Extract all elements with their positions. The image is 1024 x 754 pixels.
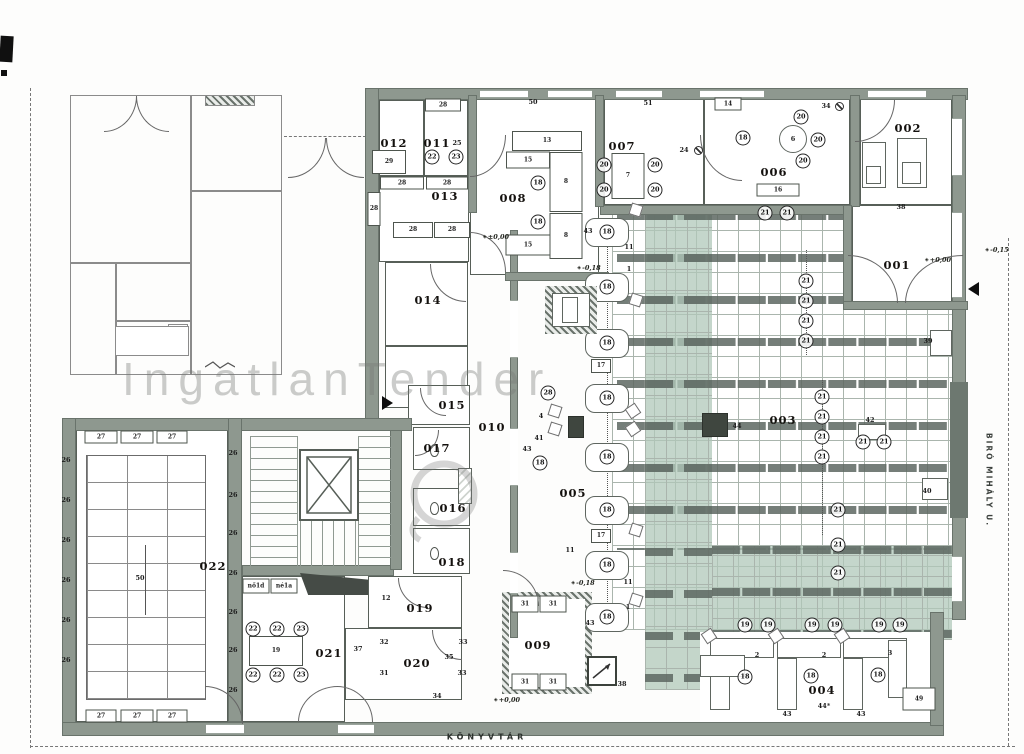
- vent-symbol-icon: [694, 146, 703, 155]
- circled-number: 21: [815, 430, 830, 445]
- plan-annotation: 4: [539, 413, 544, 420]
- elevation-marker: -0,18: [577, 264, 600, 272]
- circled-number: 23: [294, 668, 309, 683]
- plan-annotation: 15: [506, 235, 551, 256]
- circled-number: 23: [449, 150, 464, 165]
- circled-number: 18: [600, 336, 615, 351]
- room-number: 015: [438, 398, 465, 412]
- circled-number: 21: [799, 294, 814, 309]
- catalog-cabinet: [702, 413, 728, 437]
- plan-annotation: 28: [393, 222, 433, 238]
- plan-annotation: 44*: [818, 703, 830, 710]
- watermark: IngatlanTender: [122, 352, 552, 406]
- circled-number: 21: [815, 390, 830, 405]
- door-arc: [288, 138, 326, 178]
- room-number: 005: [559, 486, 586, 500]
- circled-number: 18: [600, 225, 615, 240]
- opening: [510, 428, 518, 486]
- plan-annotation: 25: [452, 140, 461, 147]
- plan-annotation: 16: [757, 184, 800, 197]
- plan-annotation: 24: [679, 147, 688, 154]
- room-number: 011: [423, 136, 450, 150]
- plan-annotation: 28: [368, 192, 381, 226]
- circled-number: 18: [804, 669, 819, 684]
- circled-number: 20: [597, 158, 612, 173]
- green-shelf-strip: [645, 212, 712, 690]
- plan-annotation: 43: [585, 620, 594, 627]
- plan-annotation: 51: [643, 100, 652, 107]
- catalog-cabinet: [568, 416, 584, 438]
- window: [952, 556, 962, 602]
- book-cart: [930, 330, 952, 356]
- desk-004: [843, 658, 863, 710]
- circled-number: 18: [600, 280, 615, 295]
- library-caption: KÖNYVTÁR: [447, 733, 528, 742]
- elevation-marker: +0,00: [494, 696, 520, 704]
- plan-annotation: 28: [380, 177, 424, 190]
- neighbor-wall: [70, 262, 191, 264]
- plan-annotation: 33: [458, 639, 467, 646]
- opening: [510, 300, 518, 358]
- plan-annotation: 49: [903, 688, 936, 711]
- bookshelf-rows: [645, 212, 712, 690]
- door-gap: [206, 724, 244, 734]
- table-022-centerline: [145, 545, 146, 615]
- circled-number: 18: [533, 456, 548, 471]
- plan-annotation: 26: [228, 492, 237, 499]
- wall-pier: [950, 382, 968, 518]
- desk-004: [777, 638, 841, 658]
- circled-number: 18: [600, 503, 615, 518]
- street-name-label: BIRÓ MIHÁLY U.: [985, 433, 994, 527]
- plan-annotation: 43: [856, 711, 865, 718]
- plan-annotation: 31: [512, 674, 539, 691]
- circled-number: 21: [815, 450, 830, 465]
- plan-annotation: 31: [540, 596, 567, 613]
- plan-annotation: 2: [822, 652, 827, 659]
- room-number: 001: [883, 258, 910, 272]
- elevator-shaft: [299, 449, 359, 521]
- circled-number: 21: [831, 503, 846, 518]
- plan-annotation: 3: [888, 650, 893, 657]
- circled-number: 21: [799, 334, 814, 349]
- opening-line: [284, 136, 366, 137]
- circled-number: 22: [270, 668, 285, 683]
- watermark-logo-icon: [396, 452, 492, 544]
- plan-annotation: 34: [432, 693, 441, 700]
- plan-annotation: 13: [512, 131, 582, 151]
- circled-number: 18: [600, 558, 615, 573]
- circled-number: 22: [425, 150, 440, 165]
- stair-arrow-box: [587, 656, 617, 686]
- room-number: 006: [760, 165, 787, 179]
- plan-annotation: nő1d: [243, 579, 270, 594]
- circled-number: 18: [531, 215, 546, 230]
- plan-annotation: 19: [249, 636, 303, 666]
- plan-annotation: né1a: [271, 579, 298, 594]
- plan-annotation: 26: [228, 450, 237, 457]
- property-line-left: [30, 88, 31, 748]
- circled-number: 18: [600, 610, 615, 625]
- plan-annotation: 8: [550, 152, 583, 212]
- plan-annotation: 28: [426, 177, 468, 190]
- plan-annotation: 2: [755, 652, 760, 659]
- room-number: 018: [438, 555, 465, 569]
- desk-002: [902, 162, 921, 184]
- circled-number: 21: [831, 538, 846, 553]
- plan-annotation: 6: [791, 136, 796, 143]
- plan-annotation: 28: [434, 222, 470, 238]
- room-number: 007: [608, 139, 635, 153]
- room-number: 020: [403, 656, 430, 670]
- plan-annotation: 31: [379, 670, 388, 677]
- plan-annotation: 39: [923, 338, 932, 345]
- circled-number: 18: [600, 450, 615, 465]
- circled-number: 21: [758, 206, 773, 221]
- stair-flight-left: [250, 436, 298, 568]
- circled-number: 21: [877, 435, 892, 450]
- stair-flight-right: [358, 436, 392, 568]
- circled-number: 21: [799, 274, 814, 289]
- door-gap: [338, 724, 374, 734]
- plan-annotation: 11: [624, 244, 633, 251]
- chair: [547, 421, 562, 436]
- plan-annotation: 31: [540, 674, 567, 691]
- circled-number: 22: [246, 668, 261, 683]
- plan-annotation: 1: [627, 266, 632, 273]
- table-022: [86, 455, 206, 700]
- plan-annotation: 31: [512, 596, 539, 613]
- circled-number: 20: [648, 158, 663, 173]
- plan-annotation: 37: [353, 646, 362, 653]
- plan-annotation: 29: [372, 150, 406, 174]
- plan-annotation: 26: [61, 457, 70, 464]
- plan-annotation: 42: [865, 417, 874, 424]
- vent-symbol-icon: [835, 102, 844, 111]
- neighbor-wall: [115, 262, 117, 375]
- circled-number: 19: [738, 618, 753, 633]
- room-number: 022: [199, 559, 226, 573]
- circled-number: 20: [796, 154, 811, 169]
- room-number: 013: [431, 189, 458, 203]
- circled-number: 22: [246, 622, 261, 637]
- plan-annotation: 26: [228, 647, 237, 654]
- circled-number: 21: [799, 314, 814, 329]
- neighbor-wall: [115, 320, 191, 322]
- plan-annotation: 27: [86, 710, 117, 723]
- room-number: 004: [808, 683, 835, 697]
- plan-annotation: 35: [444, 654, 453, 661]
- circled-number: 18: [531, 176, 546, 191]
- circled-number: 18: [871, 668, 886, 683]
- plan-annotation: 50: [528, 99, 537, 106]
- plan-annotation: 17: [591, 529, 611, 543]
- circled-number: 18: [736, 131, 751, 146]
- room-number: 012: [380, 136, 407, 150]
- elevation-marker: -0,15: [985, 246, 1008, 254]
- circled-number: 19: [872, 618, 887, 633]
- plan-annotation: 43: [583, 228, 592, 235]
- scan-smudge: [0, 36, 14, 63]
- circled-number: 23: [294, 622, 309, 637]
- window: [480, 90, 528, 98]
- circled-number: 20: [597, 183, 612, 198]
- plan-annotation: 27: [121, 710, 154, 723]
- circled-number: 19: [893, 618, 908, 633]
- circled-number: 21: [831, 566, 846, 581]
- room-number: 009: [524, 638, 551, 652]
- plan-annotation: 26: [228, 687, 237, 694]
- plan-annotation: 44: [732, 423, 741, 430]
- desk-004: [777, 658, 797, 710]
- plan-annotation: 50: [135, 575, 144, 582]
- circled-number: 28: [541, 386, 556, 401]
- neighbor-shelf: [205, 95, 255, 106]
- plan-annotation: 26: [228, 570, 237, 577]
- property-line-right: [1008, 238, 1009, 746]
- plan-annotation: 26: [61, 537, 70, 544]
- plan-annotation: 8: [550, 213, 583, 259]
- plan-annotation: 12: [381, 595, 390, 602]
- plan-annotation: 27: [157, 431, 188, 444]
- circled-number: 21: [856, 435, 871, 450]
- plan-annotation: 28: [425, 99, 461, 112]
- circled-number: 19: [828, 618, 843, 633]
- circled-number: 21: [780, 206, 795, 221]
- room-number: 021: [315, 646, 342, 660]
- window: [548, 90, 592, 98]
- circled-number: 18: [738, 670, 753, 685]
- circled-number: 20: [794, 110, 809, 125]
- neighbor-wall: [190, 95, 192, 375]
- plan-annotation: 7: [612, 153, 645, 199]
- plan-annotation: 38: [617, 681, 626, 688]
- plan-annotation: 26: [228, 530, 237, 537]
- plan-annotation: 33: [457, 670, 466, 677]
- room-number: 003: [769, 413, 796, 427]
- plan-annotation: 43: [782, 711, 791, 718]
- plan-annotation: 27: [85, 431, 118, 444]
- circled-number: 19: [761, 618, 776, 633]
- plan-annotation: 17: [591, 359, 611, 373]
- plan-annotation: 15: [506, 152, 550, 169]
- circled-number: 20: [811, 133, 826, 148]
- room-number: 002: [894, 121, 921, 135]
- entrance-arrow-icon: [968, 282, 979, 296]
- window: [868, 90, 926, 98]
- elevation-marker: +0,00: [925, 256, 951, 264]
- plan-annotation: 38: [896, 204, 905, 211]
- window: [952, 118, 962, 176]
- circled-number: 18: [600, 391, 615, 406]
- plan-annotation: 40: [922, 488, 931, 495]
- plan-annotation: 26: [61, 577, 70, 584]
- stair-landing: [300, 520, 358, 566]
- plan-annotation: 43: [522, 446, 531, 453]
- plan-annotation: 26: [61, 497, 70, 504]
- plan-annotation: 11: [565, 547, 574, 554]
- floor-plan-sheet: IngatlanTender 0010020030040050060070080…: [0, 0, 1024, 754]
- plan-annotation: 27: [157, 710, 188, 723]
- plan-annotation: 41: [534, 435, 543, 442]
- window: [616, 90, 662, 98]
- elevation-marker: ±0,00: [483, 233, 509, 241]
- room-number: 014: [414, 293, 441, 307]
- desk-002: [866, 166, 881, 184]
- circled-number: 20: [648, 183, 663, 198]
- room-number: 010: [478, 420, 505, 434]
- room-number: 008: [499, 191, 526, 205]
- plan-annotation: 11: [623, 579, 632, 586]
- circled-number: 19: [805, 618, 820, 633]
- circled-number: 22: [270, 622, 285, 637]
- plan-annotation: 27: [121, 431, 154, 444]
- room-number: 019: [406, 601, 433, 615]
- plan-annotation: 32: [379, 639, 388, 646]
- plan-annotation: 26: [61, 657, 70, 664]
- plan-annotation: 14: [715, 98, 742, 111]
- circled-number: 21: [815, 410, 830, 425]
- room-number: 017: [423, 441, 450, 455]
- neighbor-wall: [190, 190, 282, 192]
- plan-annotation: 26: [61, 617, 70, 624]
- door-arc: [326, 138, 364, 178]
- room-number: 016: [439, 501, 466, 515]
- plan-annotation: 26: [228, 609, 237, 616]
- scan-smudge: [1, 70, 7, 76]
- property-line-bottom: [30, 746, 1015, 747]
- plan-annotation: 34: [821, 103, 830, 110]
- plan-annotation: 1: [626, 604, 631, 611]
- elevation-marker: -0,18: [571, 579, 594, 587]
- info-desk-top: [562, 297, 578, 323]
